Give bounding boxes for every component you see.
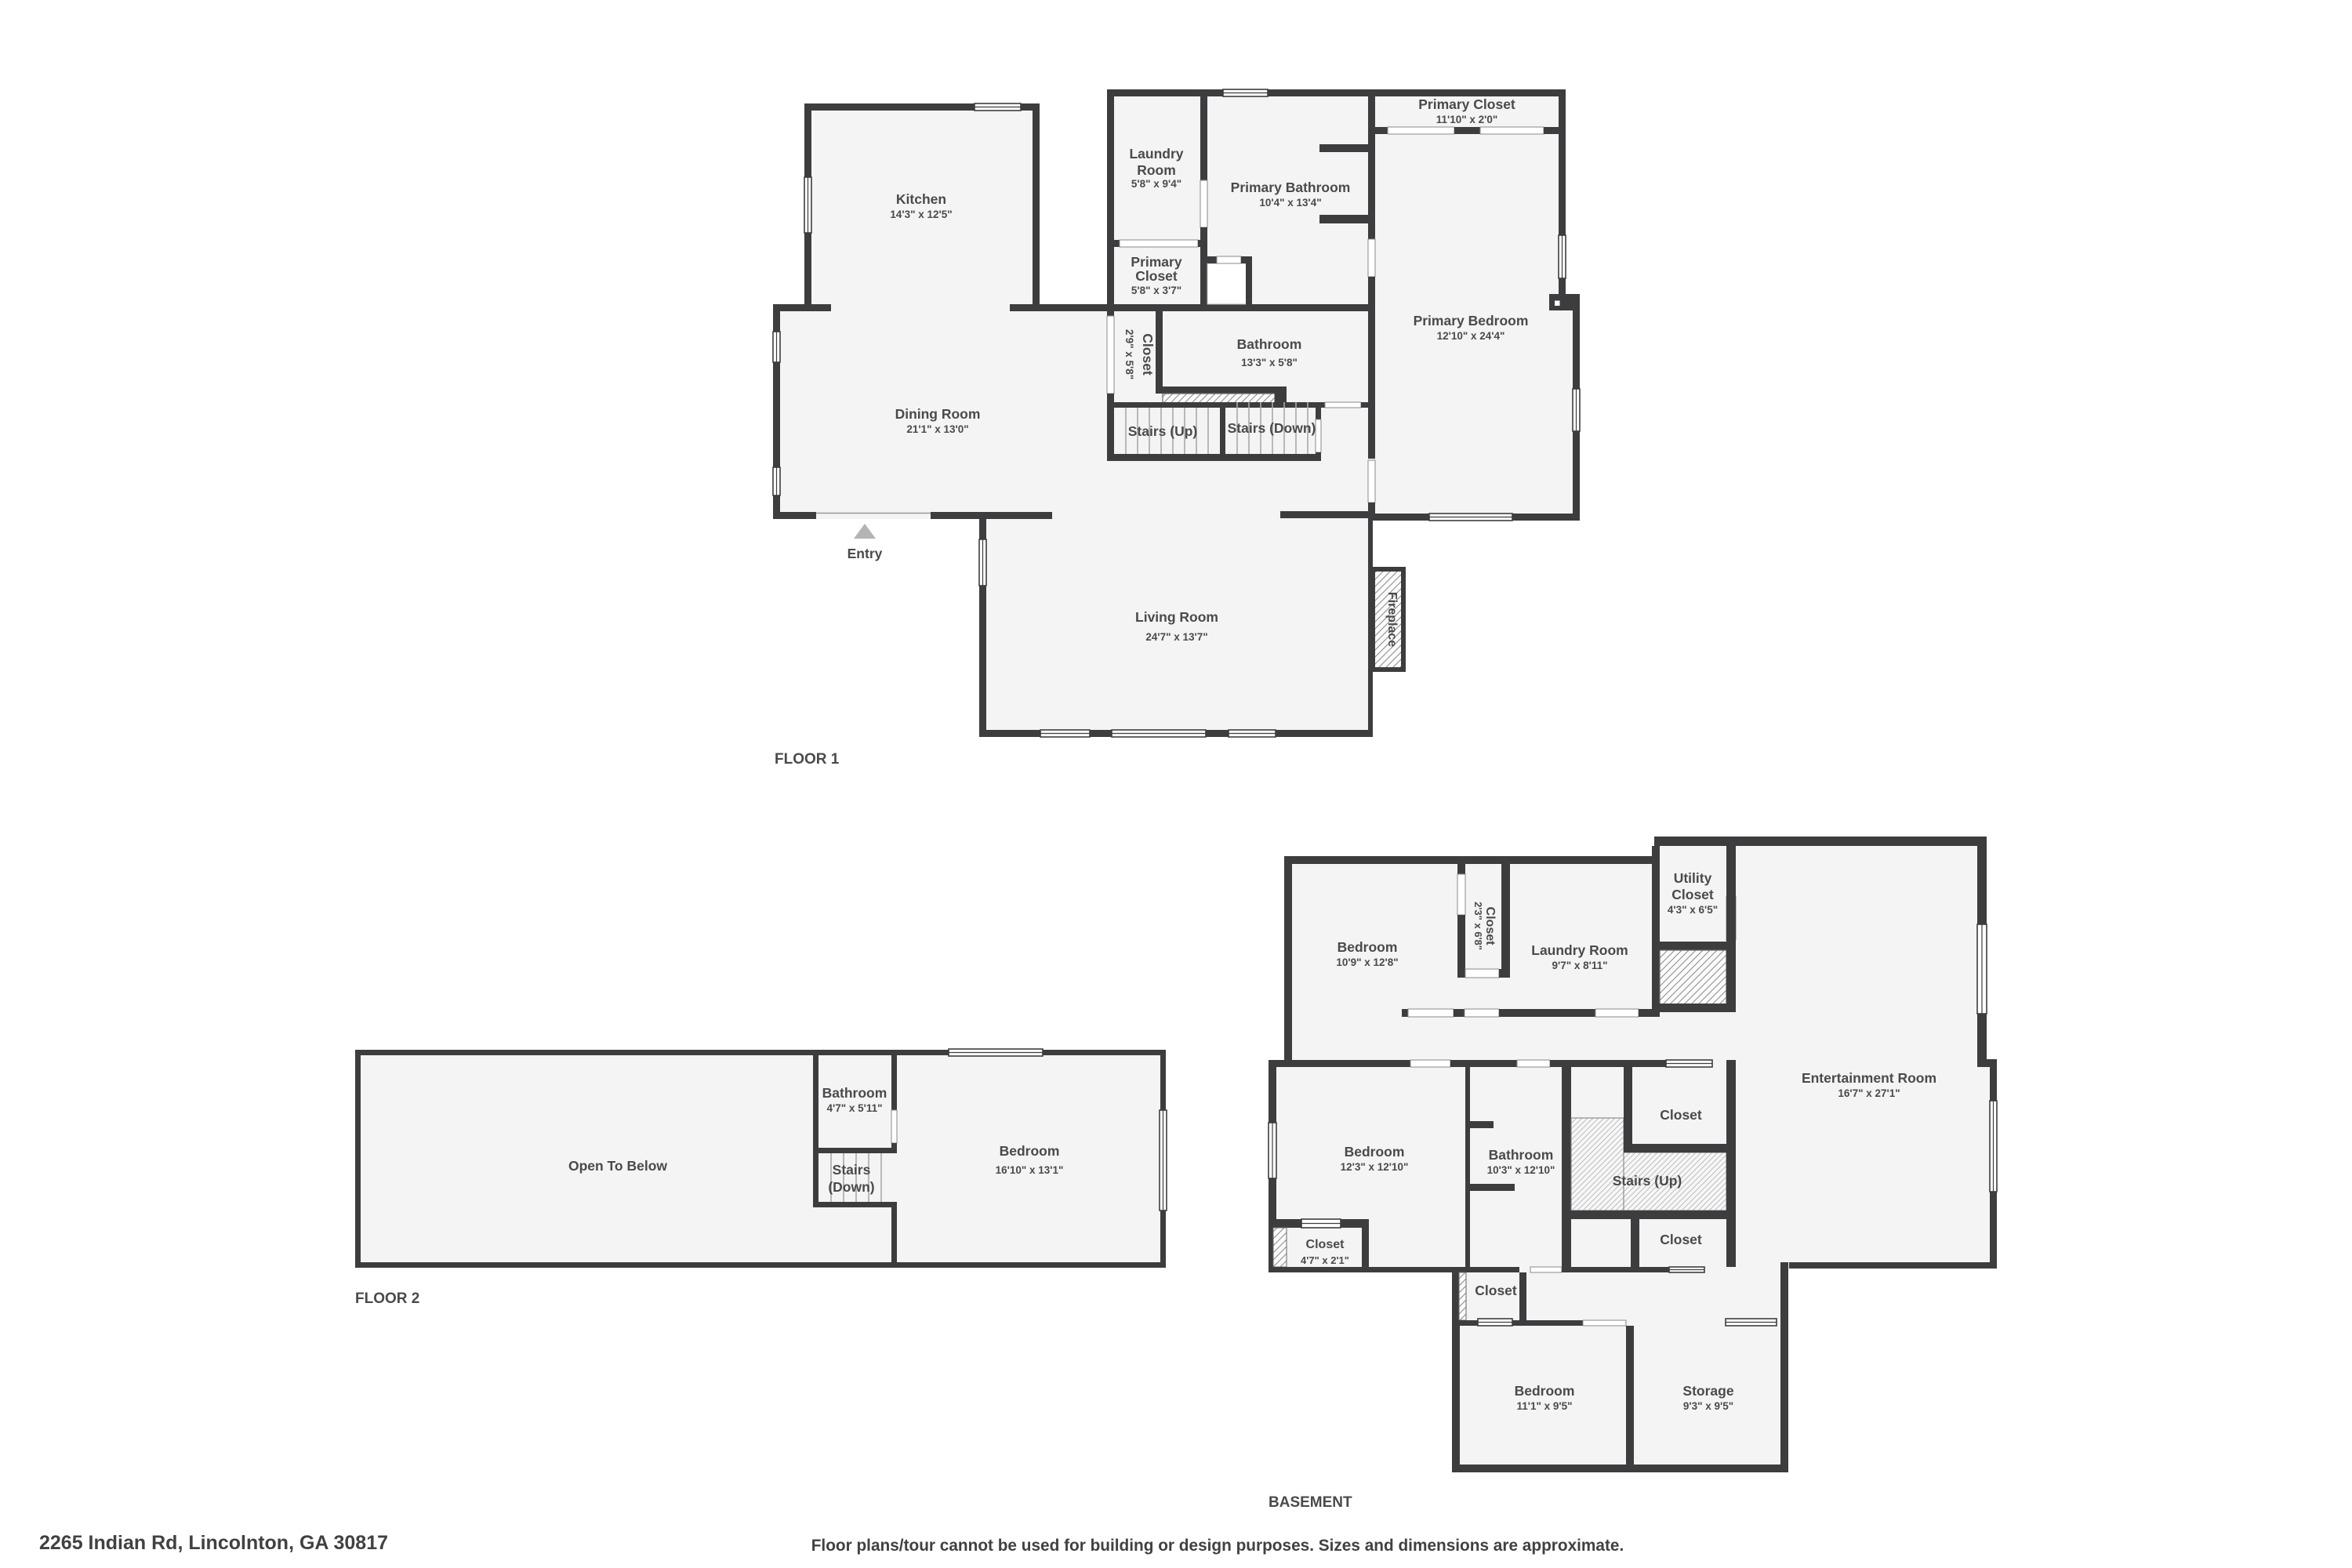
svg-text:Closet: Closet (1671, 887, 1714, 902)
svg-text:Bedroom: Bedroom (1338, 939, 1398, 955)
svg-text:4'7" x 5'11": 4'7" x 5'11" (826, 1102, 882, 1114)
svg-text:Storage: Storage (1682, 1383, 1733, 1399)
svg-text:Bedroom: Bedroom (1515, 1383, 1575, 1399)
svg-text:Kitchen: Kitchen (896, 191, 946, 207)
svg-text:5'8" x 3'7": 5'8" x 3'7" (1131, 285, 1181, 296)
svg-text:Stairs: Stairs (833, 1162, 871, 1178)
svg-text:Dining Room: Dining Room (895, 406, 981, 422)
svg-text:Primary: Primary (1131, 254, 1181, 270)
svg-text:Open To Below: Open To Below (568, 1158, 667, 1174)
svg-text:16'7" x 27'1": 16'7" x 27'1" (1838, 1087, 1900, 1099)
svg-text:11'1" x 9'5": 11'1" x 9'5" (1516, 1400, 1572, 1412)
svg-text:2265 Indian Rd, Lincolnton, GA: 2265 Indian Rd, Lincolnton, GA 30817 (39, 1532, 388, 1554)
svg-text:Floor plans/tour cannot be use: Floor plans/tour cannot be used for buil… (811, 1537, 1624, 1555)
svg-text:Laundry Room: Laundry Room (1531, 942, 1628, 958)
svg-text:4'7" x 2'1": 4'7" x 2'1" (1301, 1254, 1349, 1266)
svg-text:Living Room: Living Room (1135, 609, 1218, 625)
svg-text:9'7" x 8'11": 9'7" x 8'11" (1552, 960, 1607, 971)
svg-text:Closet: Closet (1140, 333, 1156, 376)
svg-text:Bedroom: Bedroom (1000, 1143, 1060, 1159)
svg-text:Bathroom: Bathroom (822, 1085, 887, 1101)
svg-text:9'3" x 9'5": 9'3" x 9'5" (1683, 1400, 1733, 1412)
svg-text:2'9" x 5'8": 2'9" x 5'8" (1123, 329, 1135, 379)
svg-text:5'8" x 9'4": 5'8" x 9'4" (1131, 178, 1181, 190)
svg-text:BASEMENT: BASEMENT (1269, 1494, 1352, 1511)
svg-text:Stairs (Up): Stairs (Up) (1128, 423, 1197, 439)
svg-text:(Down): (Down) (828, 1179, 874, 1195)
svg-text:Closet: Closet (1660, 1107, 1702, 1123)
svg-text:Primary Closet: Primary Closet (1418, 96, 1515, 112)
svg-text:Bathroom: Bathroom (1489, 1147, 1554, 1163)
svg-text:Primary Bathroom: Primary Bathroom (1231, 180, 1351, 195)
svg-text:12'3" x 12'10": 12'3" x 12'10" (1341, 1161, 1409, 1173)
svg-text:13'3" x 5'8": 13'3" x 5'8" (1241, 357, 1298, 368)
svg-text:Fireplace: Fireplace (1385, 592, 1399, 647)
svg-text:Closet: Closet (1660, 1232, 1702, 1247)
svg-text:12'10" x 24'4": 12'10" x 24'4" (1437, 330, 1505, 342)
svg-text:2'3" x 6'8": 2'3" x 6'8" (1472, 902, 1484, 950)
svg-text:Stairs (Down): Stairs (Down) (1228, 420, 1316, 436)
svg-text:16'10" x 13'1": 16'10" x 13'1" (996, 1164, 1064, 1176)
svg-text:Closet: Closet (1475, 1283, 1517, 1298)
svg-text:Bedroom: Bedroom (1345, 1144, 1405, 1160)
svg-text:10'4" x 13'4": 10'4" x 13'4" (1259, 197, 1321, 209)
svg-text:24'7" x 13'7": 24'7" x 13'7" (1145, 631, 1207, 643)
svg-text:Entertainment Room: Entertainment Room (1802, 1070, 1936, 1086)
svg-text:Closet: Closet (1135, 268, 1178, 284)
svg-text:Room: Room (1137, 162, 1176, 178)
svg-text:Laundry: Laundry (1129, 146, 1183, 162)
svg-text:Closet: Closet (1483, 907, 1497, 946)
svg-text:Closet: Closet (1306, 1238, 1345, 1251)
svg-text:Bathroom: Bathroom (1237, 336, 1302, 352)
svg-text:11'10" x 2'0": 11'10" x 2'0" (1436, 114, 1498, 125)
svg-text:10'9" x 12'8": 10'9" x 12'8" (1336, 956, 1398, 968)
svg-text:14'3" x 12'5": 14'3" x 12'5" (890, 209, 952, 220)
svg-text:FLOOR 2: FLOOR 2 (355, 1290, 419, 1307)
svg-text:Stairs (Up): Stairs (Up) (1613, 1173, 1682, 1189)
svg-text:Entry: Entry (848, 546, 883, 561)
svg-text:Primary Bedroom: Primary Bedroom (1414, 313, 1529, 328)
svg-text:FLOOR 1: FLOOR 1 (775, 751, 840, 768)
svg-text:21'1" x 13'0": 21'1" x 13'0" (906, 423, 968, 435)
svg-text:4'3" x 6'5": 4'3" x 6'5" (1668, 904, 1718, 916)
svg-text:10'3" x 12'10": 10'3" x 12'10" (1487, 1164, 1555, 1176)
svg-text:Utility: Utility (1674, 870, 1712, 886)
